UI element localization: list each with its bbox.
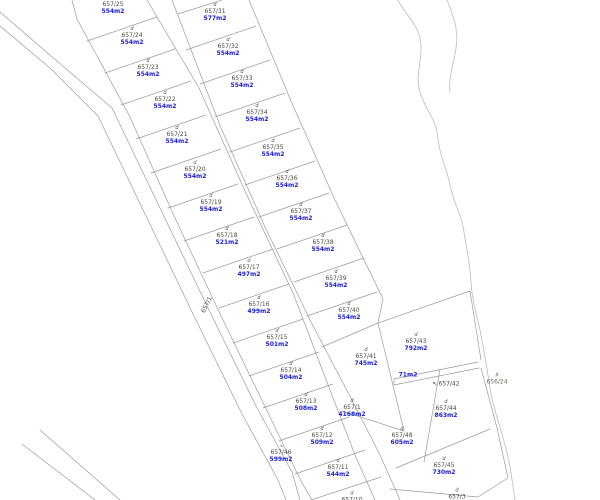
parcel-label: d657/19554m2 <box>200 193 223 213</box>
parcel-label: d657/25554m2 <box>102 0 125 15</box>
cadastral-map: d657/25554m2d657/24554m2d657/23554m2d657… <box>0 0 600 500</box>
parcel-area: 554m2 <box>217 50 240 57</box>
parcel-number: 657/14 <box>280 367 303 374</box>
parcel-number: 657/31 <box>204 8 227 15</box>
parcel-label: d657/10 <box>341 490 362 500</box>
parcel-area: 554m2 <box>231 82 254 89</box>
parcel-area: 863m2 <box>435 412 458 419</box>
parcel-number: 657/20 <box>184 166 207 173</box>
parcel-area: 499m2 <box>248 308 271 315</box>
parcel-area: 554m2 <box>325 282 348 289</box>
parcel-number: 657/45 <box>433 462 456 469</box>
parcel-label: d657/45730m2 <box>433 456 456 476</box>
parcel-area: 554m2 <box>290 215 313 222</box>
parcel-label: d657/48605m2 <box>391 426 414 446</box>
parcel-number: 657/10 <box>341 496 362 500</box>
cluster-boundaries <box>322 291 508 497</box>
parcel-label: d657/36554m2 <box>276 169 299 189</box>
parcel-area: 497m2 <box>238 271 261 278</box>
parcel-number: 657/46 <box>270 449 293 456</box>
parcel-number: 657/39 <box>325 275 348 282</box>
parcel-label: d657/33554m2 <box>231 69 254 89</box>
parcel-area: 554m2 <box>246 116 269 123</box>
parcel-number: 656/24 <box>486 378 507 385</box>
parcel-area: 71m2 <box>399 371 418 378</box>
parcel-area: 554m2 <box>276 182 299 189</box>
parcel-area: 508m2 <box>295 405 318 412</box>
bottom-left-road-lines <box>22 430 120 500</box>
parcel-number: 657/36 <box>276 175 299 182</box>
left-strip-east-edge <box>147 0 375 500</box>
parcel-label: d657/24554m2 <box>121 26 144 46</box>
parcel-label: ↘657/46599m2 <box>270 443 293 463</box>
parcel-area: 554m2 <box>102 8 125 15</box>
parcel-label: d657/32554m2 <box>217 37 240 57</box>
parcel-number: 657/43 <box>405 338 428 345</box>
parcel-number: 657/24 <box>121 32 144 39</box>
parcel-number: 657/33 <box>231 75 254 82</box>
parcel-number: 657/16 <box>248 301 271 308</box>
parcel-number: 657/38 <box>312 239 335 246</box>
parcel-area: 554m2 <box>200 206 223 213</box>
parcel-area: 605m2 <box>391 439 414 446</box>
parcel-number: 657/37 <box>290 208 313 215</box>
parcel-number: 657/22 <box>154 96 177 103</box>
parcel-label: d657/12509m2 <box>311 426 334 446</box>
parcel-number: 657/44 <box>435 405 458 412</box>
parcel-area: 501m2 <box>266 341 289 348</box>
left-strip-dividers <box>87 17 381 500</box>
parcel-label: d657/41745m2 <box>355 347 378 367</box>
parcel-label: d657/14168m2 <box>338 398 365 418</box>
parcel-label: d657/14504m2 <box>280 361 303 381</box>
parcel-number: 657/35 <box>262 144 285 151</box>
parcel-number: 657/19 <box>200 199 223 206</box>
parcel-label: d657/16499m2 <box>248 295 271 315</box>
parcel-label: d657/15501m2 <box>266 328 289 348</box>
parcel-label: d657/11544m2 <box>327 458 350 478</box>
parcel-label: d657/39554m2 <box>325 269 348 289</box>
parcel-area: 792m2 <box>405 345 428 352</box>
parcel-number: 657/40 <box>338 307 361 314</box>
parcel-area: 554m2 <box>184 173 207 180</box>
parcel-area: 509m2 <box>311 439 334 446</box>
parcel-number: 657/34 <box>246 109 269 116</box>
parcel-label: 71m2 <box>399 371 418 378</box>
parcel-label: d657/13508m2 <box>295 392 318 412</box>
parcel-number: 657/32 <box>217 43 240 50</box>
parcel-label: d657/22554m2 <box>154 90 177 110</box>
parcel-area: 730m2 <box>433 469 456 476</box>
parcel-area: 599m2 <box>270 456 293 463</box>
parcel-number: 657/1 <box>338 404 365 411</box>
parcel-area: 554m2 <box>137 71 160 78</box>
parcel-number: 657/21 <box>166 131 189 138</box>
parcel-label: d657/17497m2 <box>238 258 261 278</box>
parcel-label: II656/24 <box>486 372 507 385</box>
parcel-label: d657/23554m2 <box>137 58 160 78</box>
parcel-label: d657/37554m2 <box>290 202 313 222</box>
parcel-label: d657/18521m2 <box>216 226 239 246</box>
parcel-number: ↖657/42 <box>432 380 459 387</box>
parcel-area: 554m2 <box>121 39 144 46</box>
parcel-label: d657/43792m2 <box>405 332 428 352</box>
parcel-number: 657/17 <box>238 264 261 271</box>
parcel-number: 657/11 <box>327 464 350 471</box>
parcel-number: 657/3 <box>448 493 465 500</box>
parcel-label: ↖657/42 <box>432 380 459 387</box>
parcel-label: d657/20554m2 <box>184 160 207 180</box>
parcel-area: 4168m2 <box>338 411 365 418</box>
road-edge-inner <box>0 12 300 500</box>
parcel-number: 657/15 <box>266 334 289 341</box>
parcel-number: 657/13 <box>295 398 318 405</box>
parcel-area: 504m2 <box>280 374 303 381</box>
right-strip-west-edge <box>172 0 400 500</box>
parcel-number: 657/41 <box>355 353 378 360</box>
parcel-label: d657/44863m2 <box>435 399 458 419</box>
parcel-number: 657/12 <box>311 432 334 439</box>
parcel-area: 521m2 <box>216 239 239 246</box>
parcel-area: 544m2 <box>327 471 350 478</box>
parcel-area: 745m2 <box>355 360 378 367</box>
parcel-area: 554m2 <box>154 103 177 110</box>
arrow-icon: ↖ <box>432 380 437 387</box>
stream-line <box>398 0 515 500</box>
parcel-label: d657/38554m2 <box>312 233 335 253</box>
parcel-number: 657/25 <box>102 1 125 8</box>
parcel-label: d657/31577m2 <box>204 2 227 22</box>
stream-branch-line <box>447 0 457 92</box>
parcel-area: 577m2 <box>204 15 227 22</box>
parcel-area: 554m2 <box>262 151 285 158</box>
parcel-number: 657/48 <box>391 432 414 439</box>
parcel-label: d657/34554m2 <box>246 103 269 123</box>
parcel-number: 657/18 <box>216 232 239 239</box>
parcel-number: 657/23 <box>137 64 160 71</box>
parcel-label: d657/21554m2 <box>166 125 189 145</box>
parcel-area: 554m2 <box>312 246 335 253</box>
parcel-area: 554m2 <box>338 314 361 321</box>
parcel-label: d657/40554m2 <box>338 301 361 321</box>
map-linework <box>0 0 600 500</box>
parcel-label: d657/3 <box>448 487 465 500</box>
parcel-area: 554m2 <box>166 138 189 145</box>
parcel-label: d657/35554m2 <box>262 138 285 158</box>
